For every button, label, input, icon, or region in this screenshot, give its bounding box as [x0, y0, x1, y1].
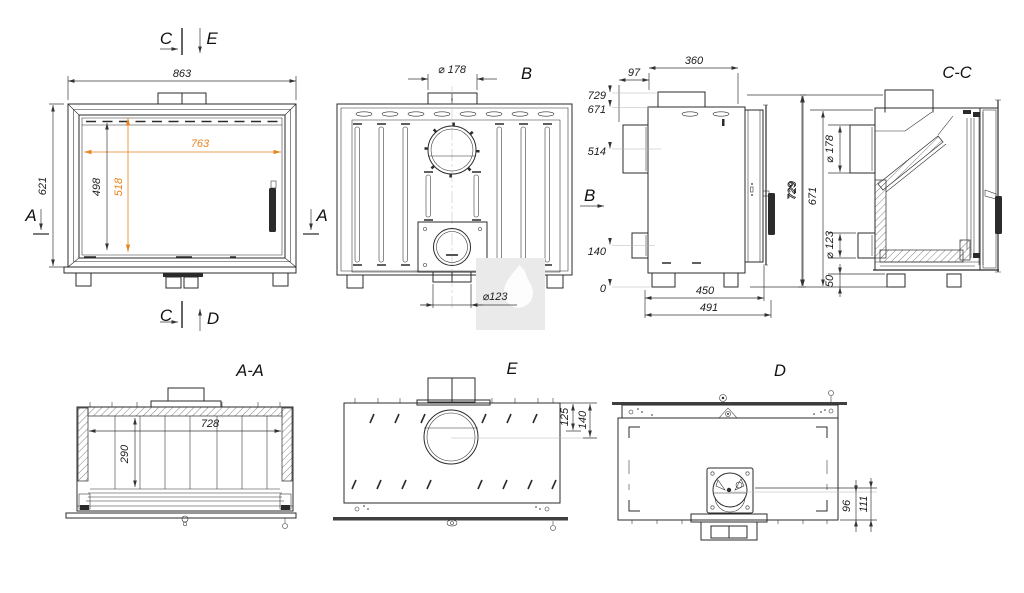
marker-a-left: A: [24, 206, 36, 225]
dim-e-center-offset: 140: [577, 410, 589, 429]
dim-level-514: 514: [588, 146, 606, 158]
dim-overall-width: 863: [173, 68, 192, 80]
aa-body: [66, 388, 296, 529]
front-handle-bracket: [271, 181, 276, 188]
view-label-b: B: [521, 65, 532, 83]
front-center-bar: [163, 273, 203, 277]
dim-outlet-diameter: ⌀123: [483, 291, 509, 303]
technical-drawing: 863 621 763 498 518 C E A A C: [0, 0, 1024, 593]
view-label-d: D: [774, 362, 786, 380]
cc-body: [850, 90, 1002, 287]
view-bottom-d: D: [612, 362, 877, 540]
dim-cc-flue-diameter: ⌀ 178: [824, 134, 836, 163]
side-body: [623, 92, 775, 287]
dim-d-front-offset: 96: [841, 499, 853, 512]
dim-level-729: 729: [588, 90, 606, 102]
marker-b-arrow-label: B: [584, 186, 595, 205]
marker-a-right: A: [315, 206, 327, 225]
dim-glass-height-accent: 518: [113, 177, 125, 196]
view-side: 360 97 729 671 514 140 0 B 729 450 491: [580, 55, 806, 318]
dim-cc-overall-height: 729: [787, 181, 799, 199]
aa-left-wall: [78, 408, 88, 481]
d-dimensions: 96 111: [755, 478, 877, 532]
dim-level-140: 140: [588, 246, 607, 258]
dim-aa-inner-height: 290: [119, 444, 131, 464]
marker-d-bottom: D: [207, 309, 219, 328]
dim-cc-base-height: 50: [824, 274, 836, 287]
e-dimensions: 125 140: [559, 403, 597, 438]
d-outlet-plate: [707, 468, 753, 513]
view-section-cc: C-C 729 671: [787, 64, 1002, 297]
dim-cc-body-height: 671: [807, 187, 819, 205]
dim-aa-inner-width: 728: [201, 418, 220, 430]
side-dimensions: 360 97 729 671 514 140 0 B 729 450 491: [580, 55, 806, 318]
side-latch-mark: [722, 119, 725, 126]
dim-overall-height: 621: [37, 177, 49, 195]
front-dimensions: 863 621 763 498 518: [37, 68, 296, 267]
marker-c-top: C: [160, 29, 173, 48]
dim-top-depth: 360: [685, 55, 704, 67]
view-rear-b: ⌀ 178 B ⌀123: [337, 64, 572, 330]
view-front: 863 621 763 498 518 C E A A C: [24, 28, 327, 331]
cc-door-handle: [995, 196, 1002, 234]
cc-left-wall: [875, 180, 886, 258]
dim-depth-overall: 491: [700, 302, 718, 314]
dim-flue-diameter: ⌀ 178: [438, 64, 467, 76]
dim-d-center-offset: 111: [858, 496, 870, 513]
dim-level-0: 0: [600, 283, 607, 295]
e-body: [333, 378, 594, 531]
aa-right-wall: [282, 408, 292, 481]
aa-dimensions: 728 290: [89, 418, 281, 487]
cc-retainer: [960, 240, 970, 260]
dim-glass-height: 498: [91, 177, 103, 196]
cc-floor: [880, 250, 963, 262]
dim-cc-outlet-diameter: ⌀ 123: [824, 230, 836, 259]
dim-flue-offset: 97: [628, 67, 641, 79]
dim-e-front-offset: 125: [559, 407, 571, 426]
drawing-sheet: 863 621 763 498 518 C E A A C: [0, 0, 1024, 593]
view-label-e: E: [506, 360, 518, 378]
view-top-e: E 125 140: [333, 360, 597, 531]
view-section-aa: A-A 728 290: [66, 362, 296, 529]
dim-level-671: 671: [588, 104, 606, 116]
side-door-handle: [768, 193, 775, 235]
dim-depth-inner: 450: [696, 285, 715, 297]
front-door-handle: [269, 188, 276, 232]
view-label-aa: A-A: [235, 362, 264, 380]
d-body: [612, 391, 877, 541]
marker-e-top: E: [206, 29, 218, 48]
rear-vent-ovals: [356, 112, 554, 116]
cc-baffle: [878, 136, 943, 190]
dim-glass-width: 763: [191, 138, 210, 150]
view-label-cc: C-C: [942, 64, 971, 82]
aa-top-insulation: [88, 407, 282, 416]
rear-side-slots: [353, 124, 552, 265]
